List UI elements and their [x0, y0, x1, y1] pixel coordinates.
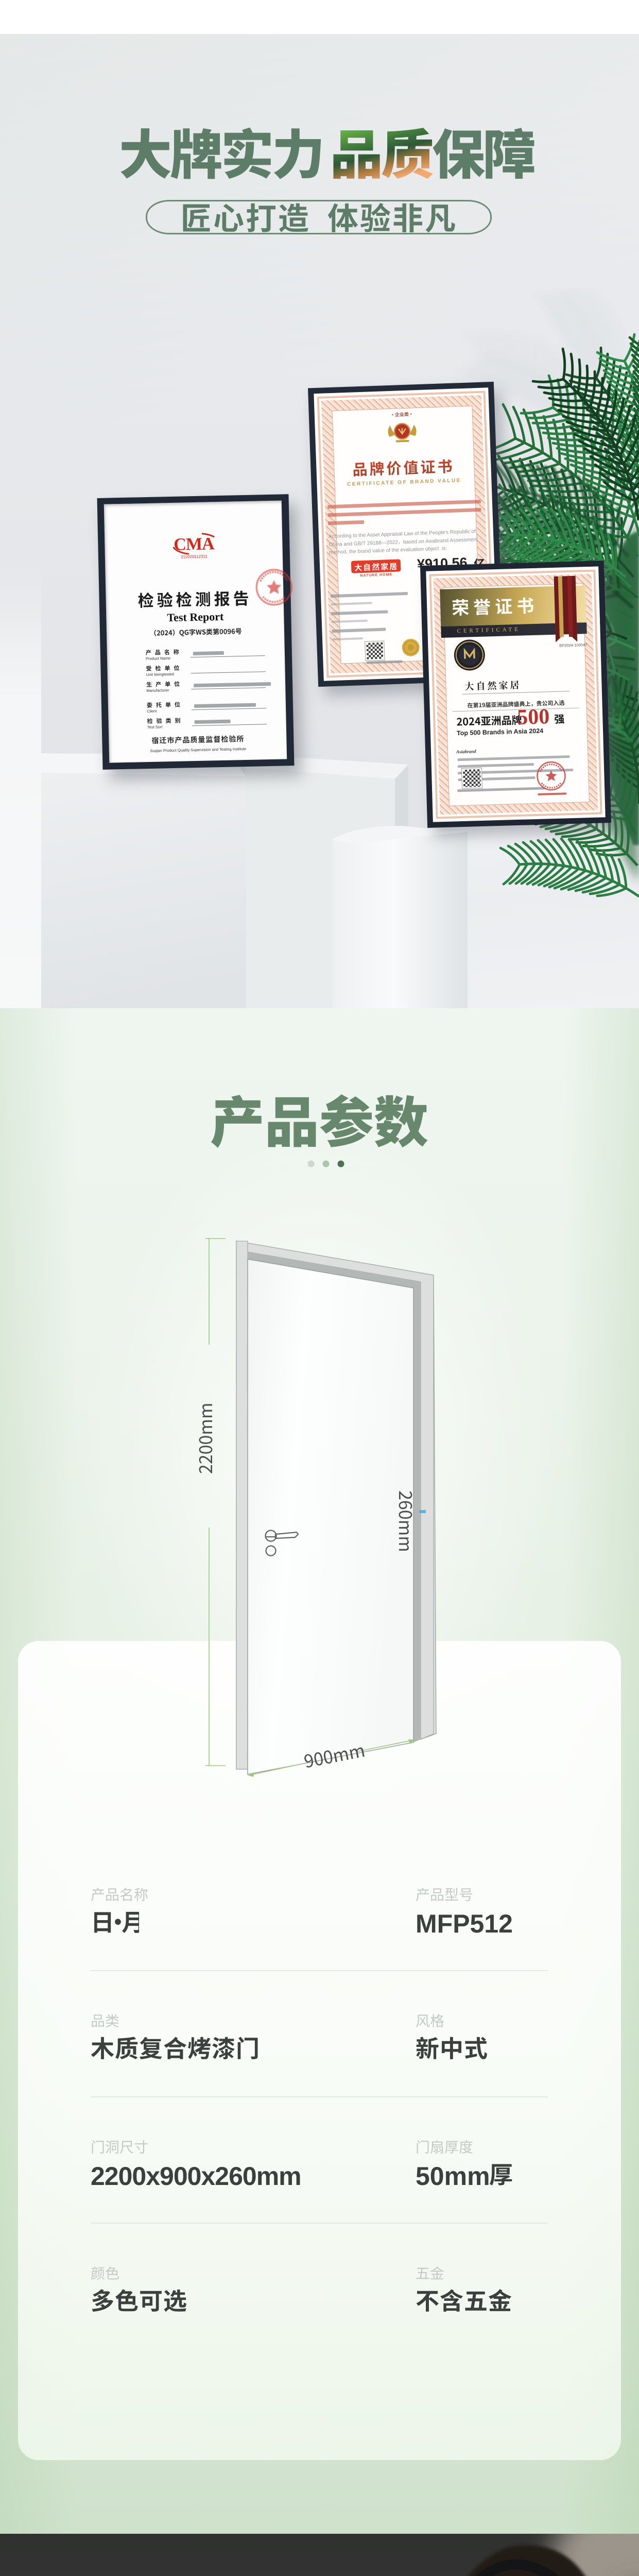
svg-text:211020112311: 211020112311 [181, 554, 208, 559]
